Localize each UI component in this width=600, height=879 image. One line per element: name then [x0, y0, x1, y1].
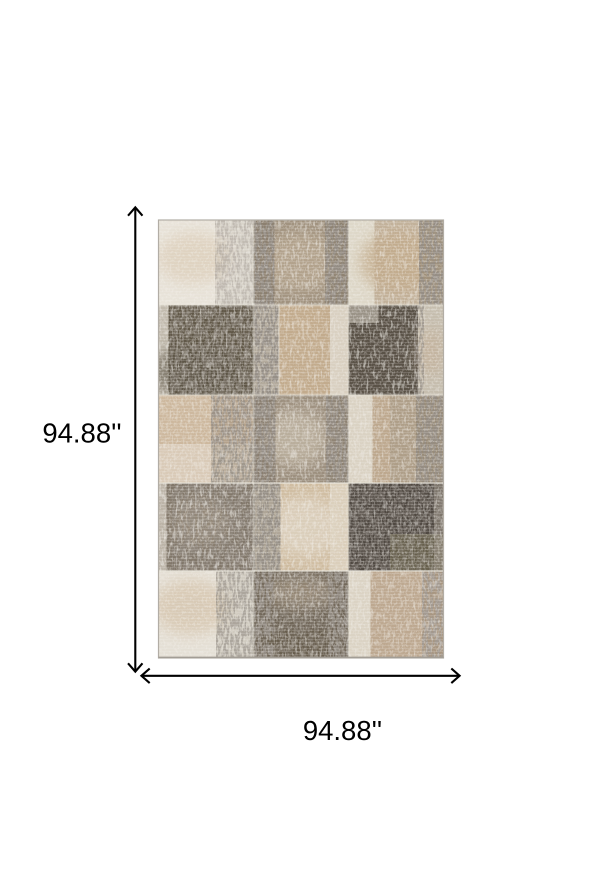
svg-text:94.88'': 94.88'' [42, 418, 121, 449]
svg-text:94.88'': 94.88'' [303, 715, 382, 746]
